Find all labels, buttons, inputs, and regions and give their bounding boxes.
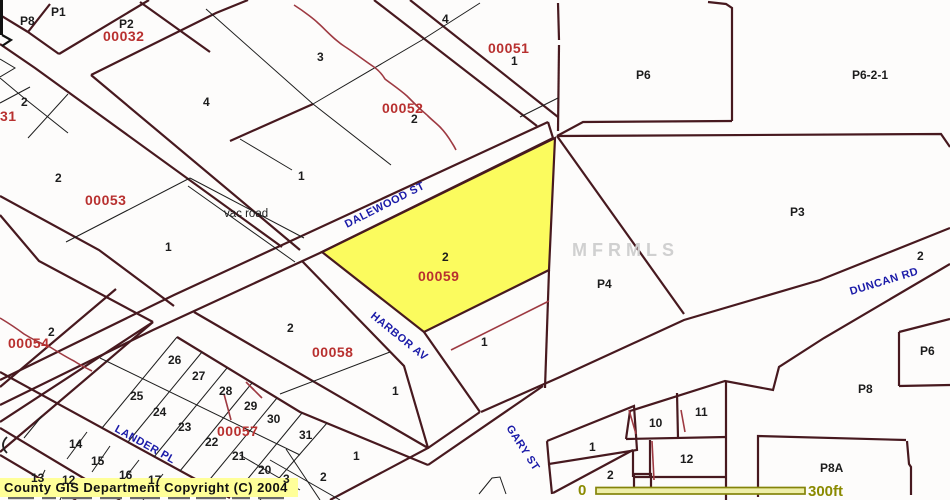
svg-text:P8: P8 — [858, 382, 873, 396]
svg-text:MFRMLS: MFRMLS — [572, 240, 679, 260]
svg-text:1: 1 — [481, 335, 488, 349]
svg-text:P1: P1 — [51, 5, 66, 19]
svg-text:1: 1 — [165, 240, 172, 254]
svg-text:30: 30 — [267, 412, 281, 426]
svg-text:20: 20 — [258, 463, 272, 477]
svg-text:25: 25 — [130, 389, 144, 403]
svg-text:2: 2 — [320, 470, 327, 484]
svg-text:P8A: P8A — [820, 461, 844, 475]
svg-text:P6: P6 — [636, 68, 651, 82]
svg-text:00057: 00057 — [217, 423, 258, 439]
svg-text:4: 4 — [203, 95, 210, 109]
svg-text:00032: 00032 — [103, 28, 144, 44]
svg-text:15: 15 — [91, 454, 105, 468]
svg-text:00059: 00059 — [418, 268, 459, 284]
svg-text:P6-2-1: P6-2-1 — [852, 68, 888, 82]
svg-text:24: 24 — [153, 405, 167, 419]
svg-text:12: 12 — [680, 452, 694, 466]
svg-text:P3: P3 — [790, 205, 805, 219]
svg-text:00054: 00054 — [8, 335, 49, 351]
svg-text:12: 12 — [62, 473, 76, 487]
svg-text:4: 4 — [442, 12, 449, 26]
svg-text:2: 2 — [917, 249, 924, 263]
svg-text:27: 27 — [192, 369, 206, 383]
svg-text:3: 3 — [317, 50, 324, 64]
svg-text:31: 31 — [299, 428, 313, 442]
svg-text:0: 0 — [578, 482, 586, 499]
svg-text:13: 13 — [31, 471, 45, 485]
svg-text:17: 17 — [148, 473, 162, 487]
svg-text:23: 23 — [178, 420, 192, 434]
svg-text:3: 3 — [283, 472, 290, 486]
svg-text:1: 1 — [298, 169, 305, 183]
svg-text:00051: 00051 — [488, 40, 529, 56]
svg-text:1: 1 — [589, 440, 596, 454]
svg-text:County GIS Department Copyrigh: County GIS Department Copyright (C) 2004 — [4, 480, 288, 495]
svg-text:2: 2 — [48, 325, 55, 339]
svg-text:00058: 00058 — [312, 344, 353, 360]
svg-text:2: 2 — [442, 250, 449, 264]
svg-text:300ft: 300ft — [808, 483, 843, 500]
svg-text:28: 28 — [219, 384, 233, 398]
svg-text:1: 1 — [392, 384, 399, 398]
svg-text:16: 16 — [119, 468, 133, 482]
svg-text:14: 14 — [69, 437, 83, 451]
svg-text:2: 2 — [607, 468, 614, 482]
svg-text:P6: P6 — [920, 344, 935, 358]
svg-text:2: 2 — [55, 171, 62, 185]
svg-text:vac road: vac road — [224, 208, 268, 220]
svg-text:P8: P8 — [20, 14, 35, 28]
svg-text:10: 10 — [649, 416, 663, 430]
svg-text:21: 21 — [232, 449, 246, 463]
svg-text:26: 26 — [168, 353, 182, 367]
svg-text:29: 29 — [244, 399, 258, 413]
svg-text:31: 31 — [0, 108, 17, 124]
svg-text:2: 2 — [287, 321, 294, 335]
svg-text:2: 2 — [21, 95, 28, 109]
svg-text:P4: P4 — [597, 277, 612, 291]
svg-text:1: 1 — [353, 449, 360, 463]
svg-text:1: 1 — [511, 54, 518, 68]
svg-text:11: 11 — [695, 405, 708, 419]
svg-text:2: 2 — [411, 112, 418, 126]
svg-text:00053: 00053 — [85, 192, 126, 208]
